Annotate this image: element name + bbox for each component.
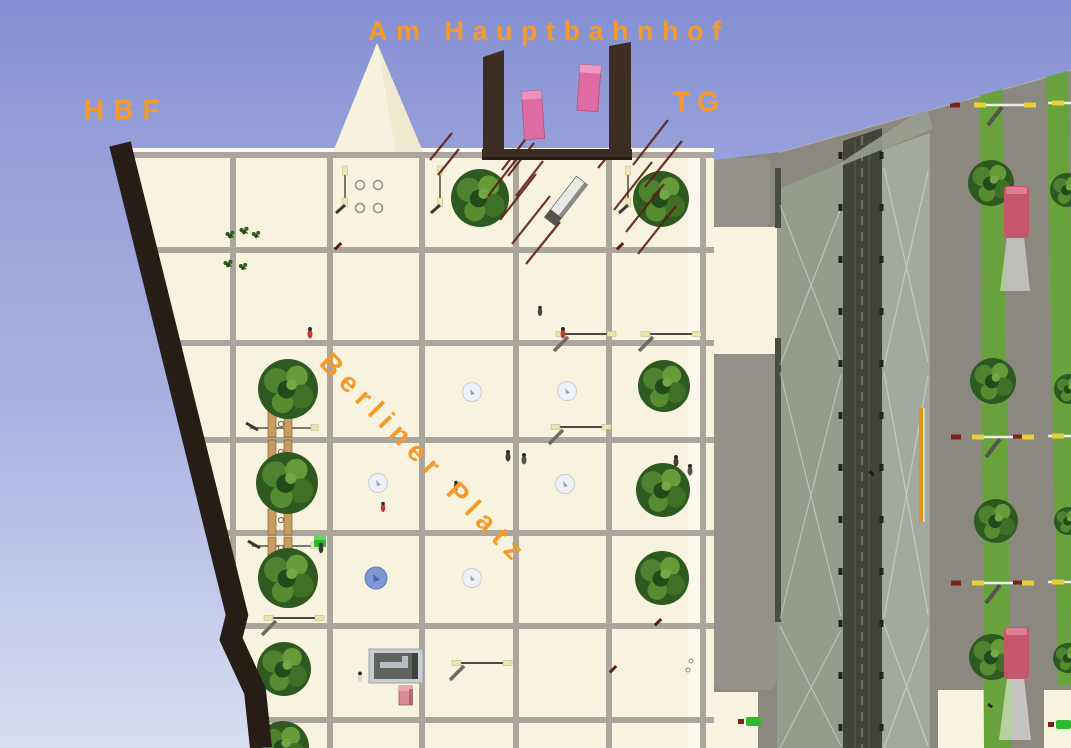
tram-canopy (775, 107, 933, 748)
street-tree (970, 358, 1016, 404)
plaza-tree (635, 551, 689, 605)
label-tg: TG (673, 86, 726, 117)
plaza-tree (258, 359, 318, 419)
fountain-jet (558, 382, 577, 401)
plaza-tree (633, 171, 689, 227)
road-area (713, 69, 1071, 748)
plaza-tree (636, 463, 690, 517)
plaza-cutout-mid (713, 227, 777, 354)
entrance-wall-east (609, 42, 631, 152)
site-plan-screenshot: Am Hauptbahnhof HBF TG Berliner Platz (0, 0, 1071, 748)
plaza-cutout-far-corner (1044, 690, 1071, 748)
plaza-tree (638, 360, 690, 412)
label-hbf: HBF (84, 94, 169, 125)
fountain-jet (463, 383, 482, 402)
elevator-tower (577, 64, 601, 111)
platform-edge-white (923, 408, 925, 522)
plaza-tree (256, 452, 318, 514)
sidewalk-pad-north (713, 158, 770, 227)
plaza-cutout-bottom-right (938, 690, 984, 748)
plaza-tree (258, 548, 318, 608)
platform-edge-orange (919, 408, 923, 522)
entrance-wall-shadow (482, 157, 632, 160)
pedestrian (561, 327, 566, 338)
ticket-machine-pink (399, 686, 413, 705)
pedestrian (308, 327, 313, 338)
fountain-jet (369, 474, 388, 493)
sidewalk-pad-south (713, 354, 777, 690)
pedestrian (522, 453, 527, 464)
fountain-pool (365, 567, 387, 589)
entrance-wall-west (483, 50, 504, 152)
green-kiosk-cube-top (314, 536, 326, 540)
elevator-tower (521, 90, 544, 139)
canopy-edge-beam (775, 168, 781, 228)
canopy-edge-beam (775, 338, 781, 622)
pedestrian (674, 455, 679, 466)
canopy-glass-west (777, 162, 843, 748)
underground-stair-access (369, 649, 423, 683)
pedestrian (319, 542, 324, 553)
pedestrian (688, 464, 693, 475)
fountain-jet (556, 475, 575, 494)
pedestrian (381, 502, 385, 512)
label-am-hauptbahnhof: Am Hauptbahnhof (368, 16, 729, 46)
street-tree (974, 499, 1018, 543)
pedestrian (538, 306, 542, 316)
fountain-jet (463, 569, 482, 588)
site-plan-canvas: Am Hauptbahnhof HBF TG Berliner Platz (0, 0, 1071, 748)
pedestrian (358, 671, 363, 682)
pedestrian (506, 450, 511, 461)
